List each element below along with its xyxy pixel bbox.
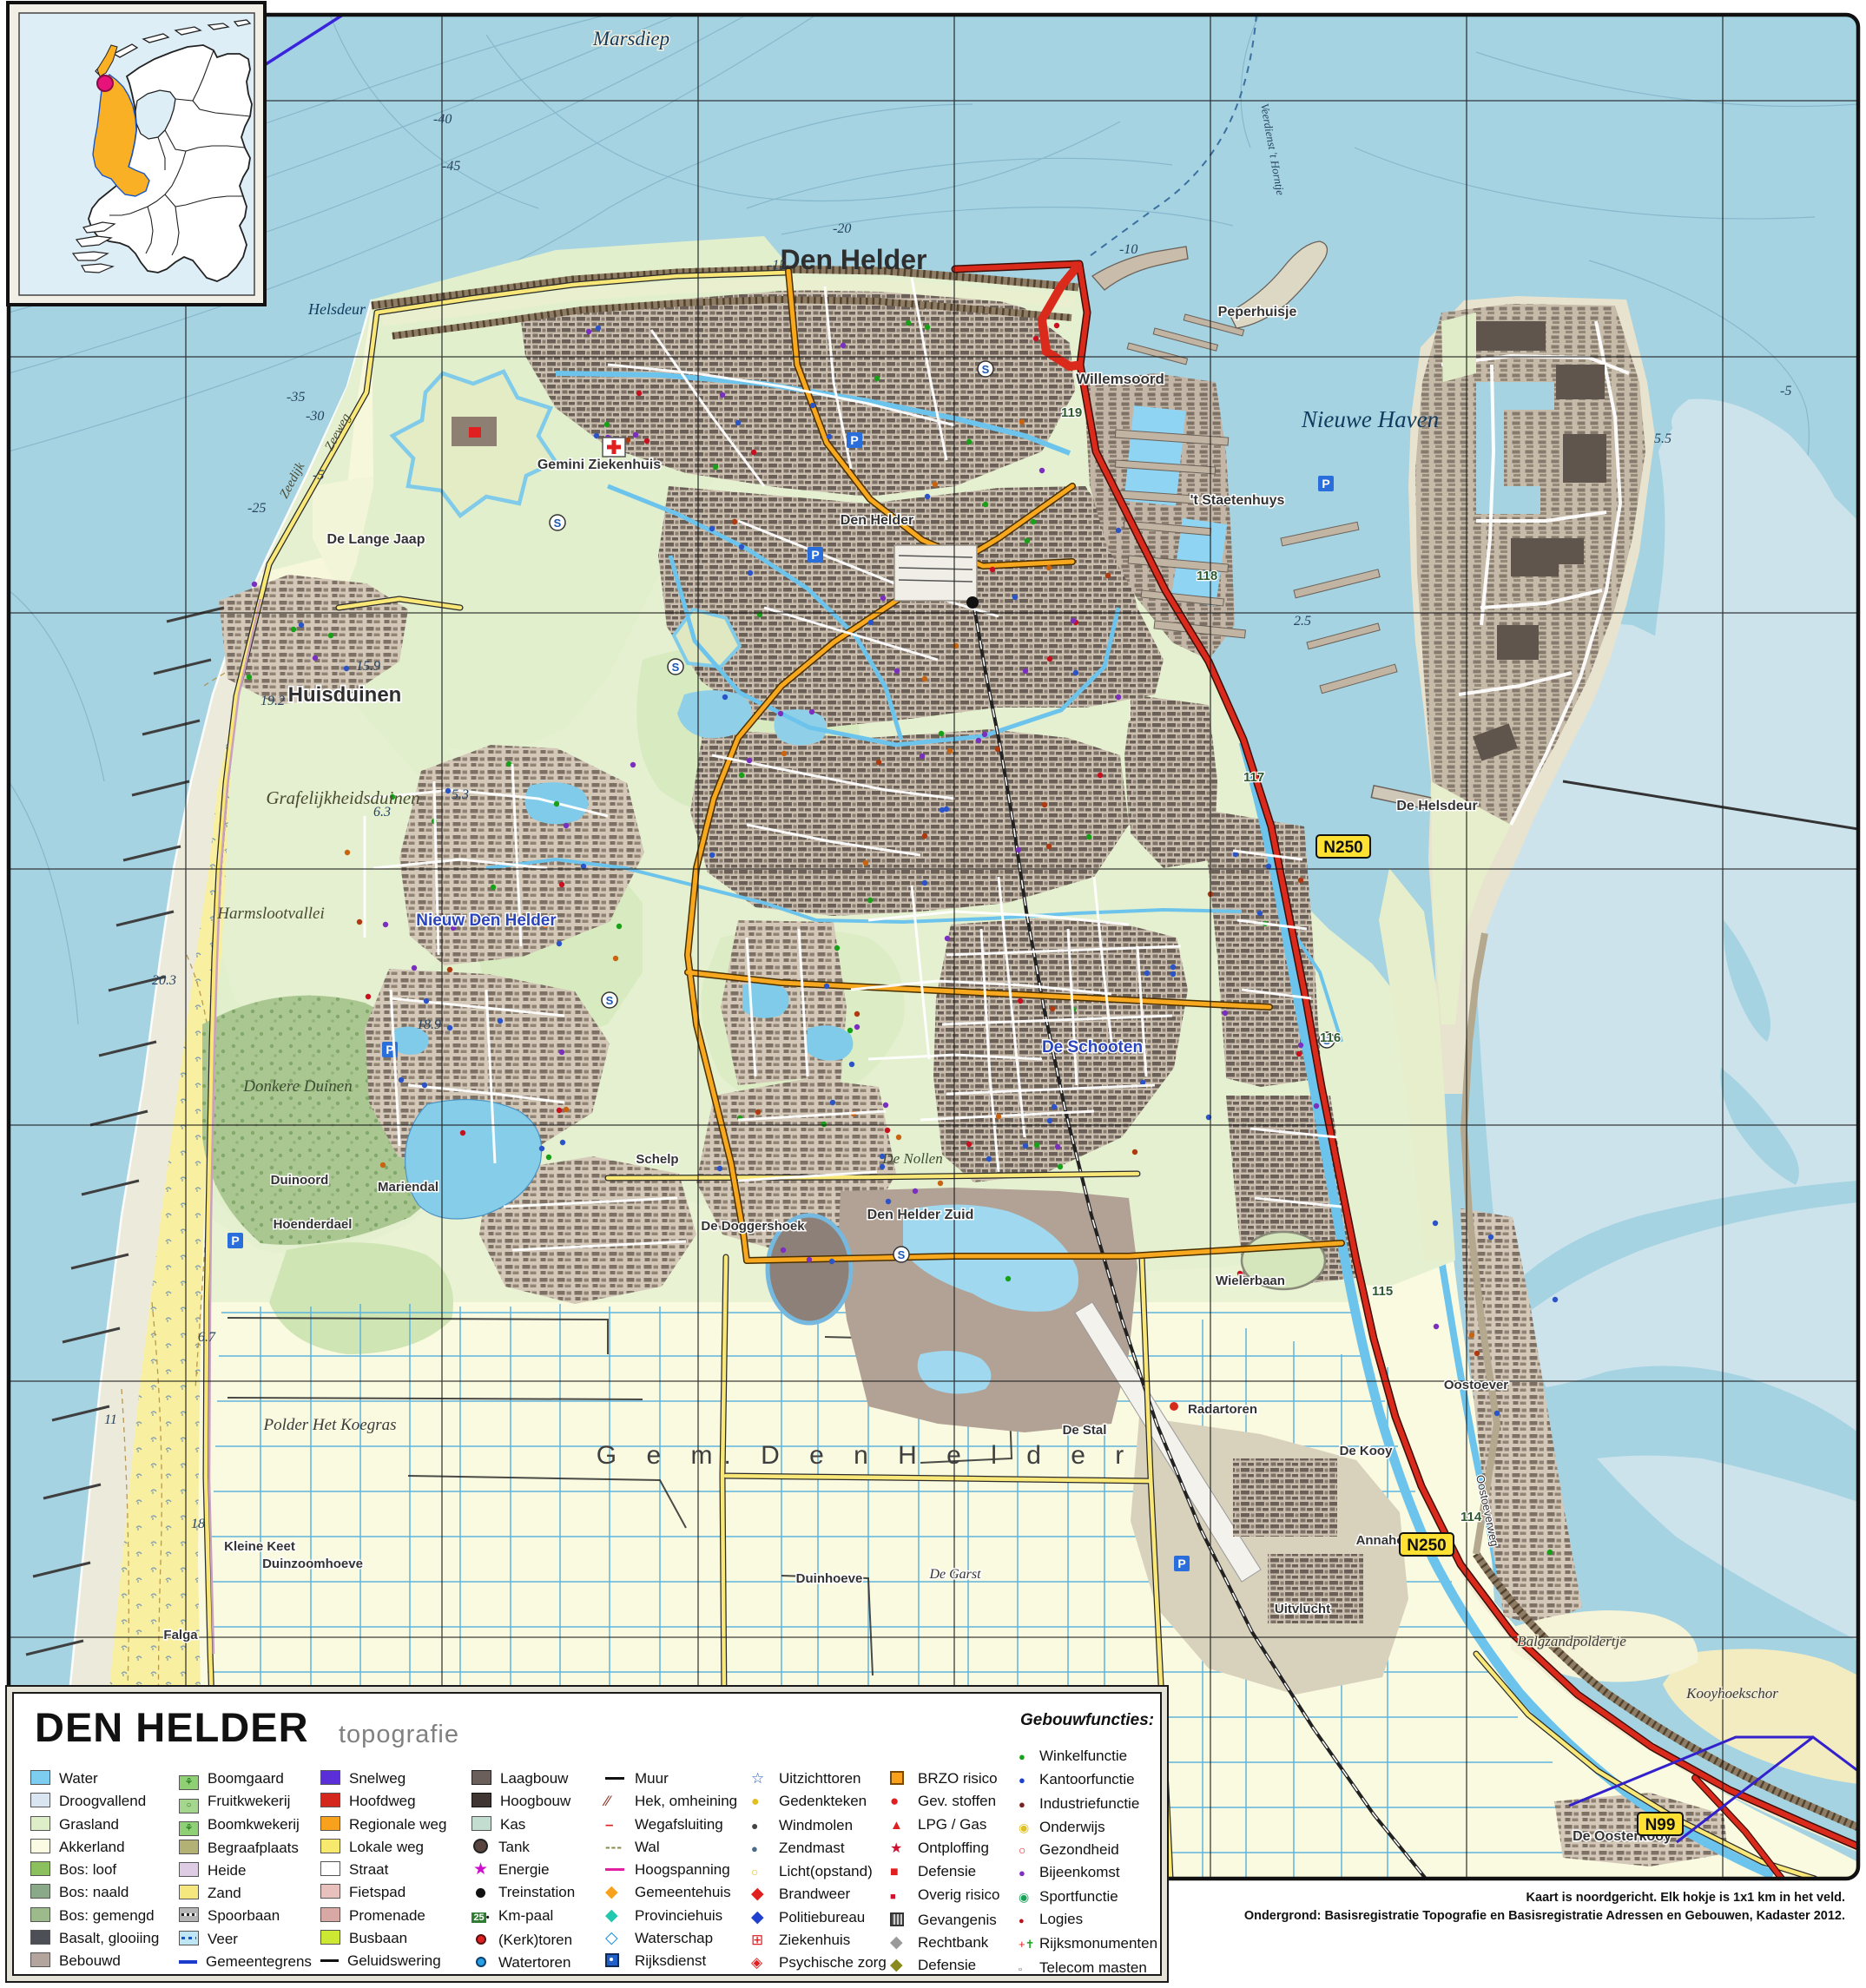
svg-text:N250: N250 xyxy=(1323,839,1362,857)
svg-text:P: P xyxy=(231,1234,239,1247)
svg-text:-35: -35 xyxy=(287,390,305,405)
svg-text:117: 117 xyxy=(1243,770,1264,785)
svg-text:S: S xyxy=(606,994,614,1007)
svg-text:19.2: 19.2 xyxy=(260,694,285,708)
svg-text:De Schooten: De Schooten xyxy=(1042,1038,1143,1057)
svg-text:119: 119 xyxy=(1061,405,1082,420)
svg-text:De Helsdeur: De Helsdeur xyxy=(1396,799,1477,813)
svg-text:Donkere Duinen: Donkere Duinen xyxy=(242,1077,352,1096)
svg-text:Willemsoord: Willemsoord xyxy=(1076,371,1164,387)
svg-text:Peperhuisje: Peperhuisje xyxy=(1218,305,1297,319)
svg-text:Kleine Keet: Kleine Keet xyxy=(224,1539,295,1554)
svg-text:Den Helder: Den Helder xyxy=(841,513,913,528)
svg-text:Nieuwe Haven: Nieuwe Haven xyxy=(1301,406,1439,432)
svg-text:De Stal: De Stal xyxy=(1063,1423,1107,1438)
svg-text:Duinoord: Duinoord xyxy=(271,1173,329,1188)
svg-text:-25: -25 xyxy=(247,501,266,516)
svg-text:S: S xyxy=(898,1248,906,1261)
svg-text:Polder Het Koegras: Polder Het Koegras xyxy=(262,1416,396,1434)
svg-text:18.9: 18.9 xyxy=(417,1017,441,1032)
svg-text:2.5: 2.5 xyxy=(1294,614,1311,629)
svg-text:6.3: 6.3 xyxy=(373,805,391,820)
svg-text:Balgzandpoldertje: Balgzandpoldertje xyxy=(1517,1633,1626,1649)
svg-text:Schelp: Schelp xyxy=(636,1152,678,1167)
svg-text:'t Staetenhuys: 't Staetenhuys xyxy=(1190,493,1285,508)
svg-text:118: 118 xyxy=(1197,569,1217,583)
svg-text:Mariendal: Mariendal xyxy=(378,1180,438,1195)
svg-text:P: P xyxy=(1177,1557,1185,1570)
svg-text:P: P xyxy=(850,433,858,447)
svg-text:S: S xyxy=(554,517,562,530)
svg-text:De Nollen: De Nollen xyxy=(881,1150,942,1167)
svg-text:Wielerbaan: Wielerbaan xyxy=(1216,1274,1285,1288)
svg-text:Gemini Ziekenhuis: Gemini Ziekenhuis xyxy=(537,458,661,472)
svg-text:Radartoren: Radartoren xyxy=(1188,1402,1257,1417)
svg-text:P: P xyxy=(1322,477,1329,490)
svg-text:Helsdeur: Helsdeur xyxy=(307,300,366,318)
svg-text:-5: -5 xyxy=(313,468,324,483)
svg-text:Falga: Falga xyxy=(163,1628,198,1642)
svg-text:5.5: 5.5 xyxy=(1654,431,1671,446)
svg-text:De Kooy: De Kooy xyxy=(1340,1444,1394,1458)
svg-text:-5: -5 xyxy=(1780,384,1791,398)
svg-text:Huisduinen: Huisduinen xyxy=(288,683,402,707)
svg-text:Kooyhoekschor: Kooyhoekschor xyxy=(1685,1685,1778,1702)
svg-text:15.9: 15.9 xyxy=(356,659,380,674)
svg-text:S: S xyxy=(982,363,990,376)
svg-text:-40: -40 xyxy=(433,112,452,127)
svg-text:114: 114 xyxy=(1460,1510,1482,1524)
svg-text:20.3: 20.3 xyxy=(152,973,176,988)
svg-text:Marsdiep: Marsdiep xyxy=(592,28,669,49)
svg-text:Duinzoomhoeve: Duinzoomhoeve xyxy=(262,1557,363,1571)
svg-text:De Doggershoek: De Doggershoek xyxy=(701,1219,805,1234)
svg-text:De Garst: De Garst xyxy=(928,1567,981,1582)
svg-text:Harmslootvallei: Harmslootvallei xyxy=(216,905,325,923)
svg-text:P: P xyxy=(811,548,819,562)
svg-text:G e m. D e n H e l d e r: G e m. D e n H e l d e r xyxy=(597,1441,1135,1470)
svg-text:18: 18 xyxy=(191,1517,205,1531)
svg-text:Oostoever: Oostoever xyxy=(1444,1378,1508,1392)
svg-text:Duinhoeve: Duinhoeve xyxy=(796,1571,863,1586)
svg-text:Uitvlucht: Uitvlucht xyxy=(1275,1602,1330,1616)
svg-text:-45: -45 xyxy=(442,159,460,174)
svg-text:De Lange Jaap: De Lange Jaap xyxy=(327,532,425,547)
svg-text:Nieuw Den Helder: Nieuw Den Helder xyxy=(416,912,557,930)
svg-text:N99: N99 xyxy=(1645,1816,1676,1834)
svg-text:-10: -10 xyxy=(1119,242,1137,257)
svg-text:116: 116 xyxy=(1320,1030,1341,1045)
svg-text:5.3: 5.3 xyxy=(452,787,469,802)
svg-text:N250: N250 xyxy=(1407,1537,1446,1555)
svg-text:Den Helder: Den Helder xyxy=(781,244,927,275)
svg-text:Hoenderdael: Hoenderdael xyxy=(274,1217,353,1232)
svg-text:-15: -15 xyxy=(768,258,786,273)
svg-text:-30: -30 xyxy=(306,409,324,424)
svg-text:Grafelijkheidsduinen: Grafelijkheidsduinen xyxy=(266,787,419,808)
svg-text:S: S xyxy=(672,661,680,674)
svg-text:11: 11 xyxy=(104,1412,117,1427)
svg-text:Den Helder Zuid: Den Helder Zuid xyxy=(867,1208,974,1222)
svg-text:-20: -20 xyxy=(833,221,851,236)
svg-text:115: 115 xyxy=(1372,1284,1393,1299)
svg-text:6.7: 6.7 xyxy=(198,1330,216,1345)
